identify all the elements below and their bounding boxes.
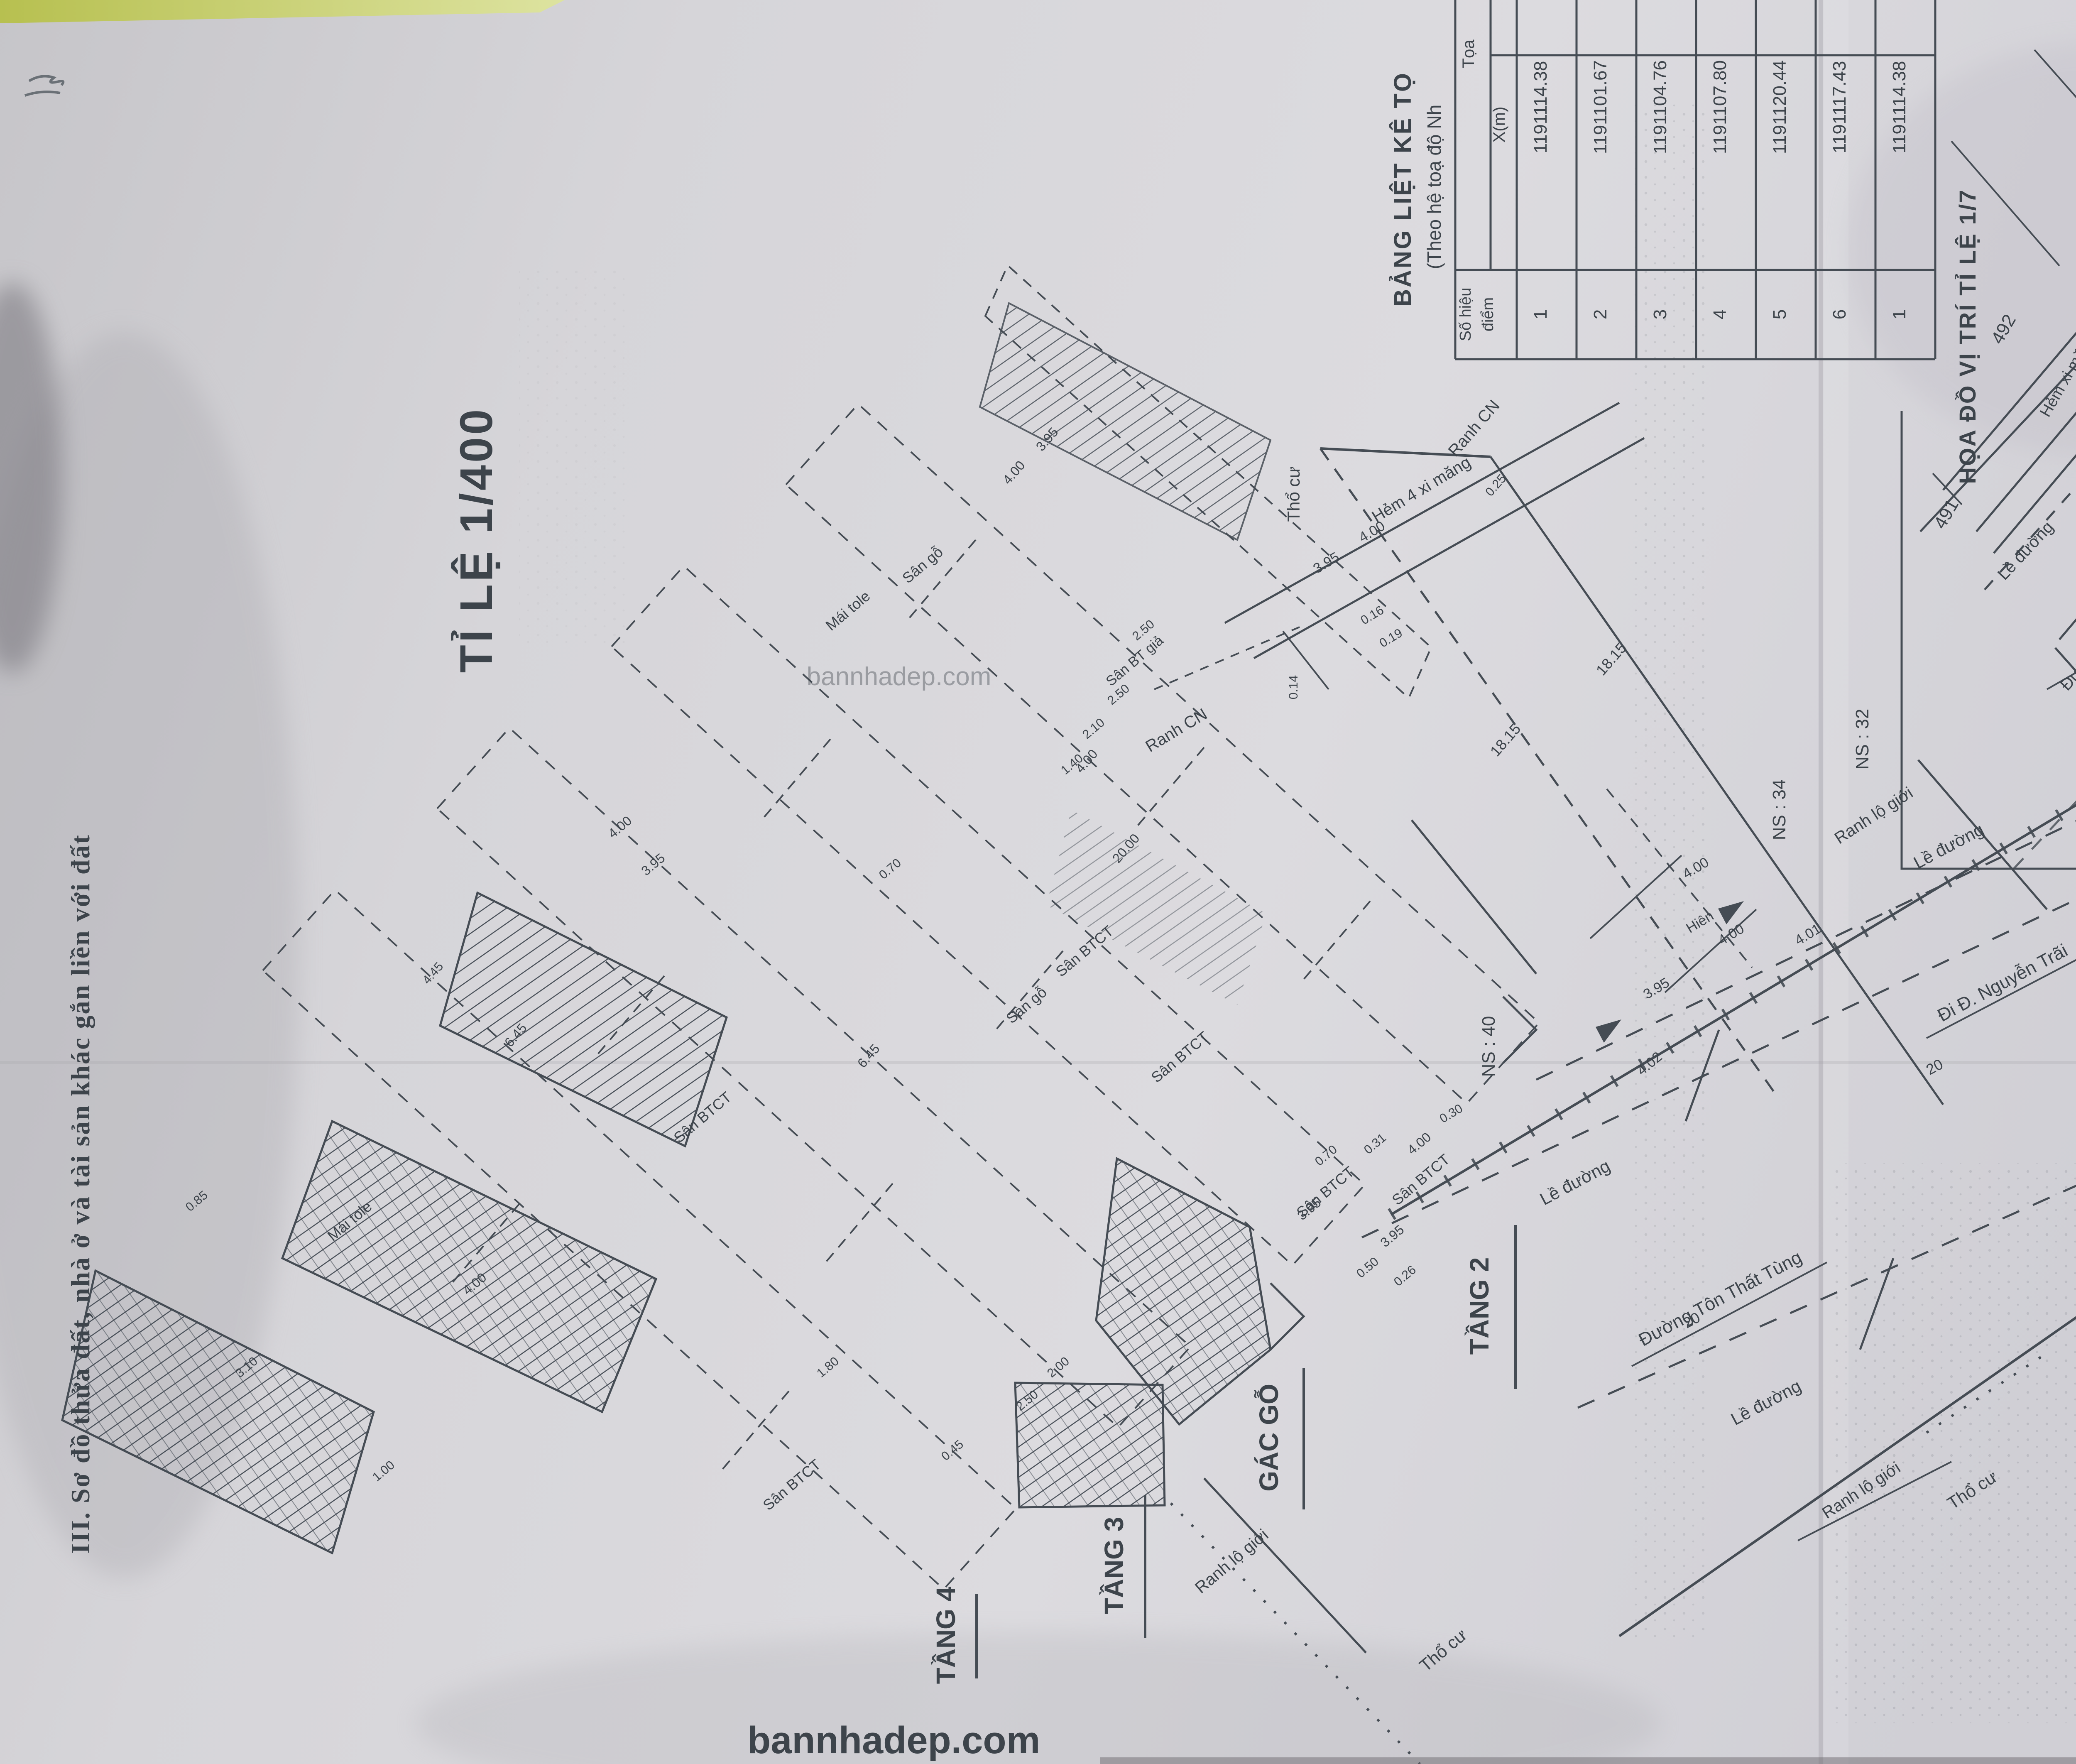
table-row-x-value: 1191120.44 xyxy=(1770,60,1790,154)
drawing-label: NS : 34 xyxy=(1769,779,1790,840)
drawing-label: 0.14 xyxy=(1287,675,1300,699)
coord-table-header-point1: Số hiệu xyxy=(1457,288,1474,341)
table-row-x-value: 1191114.38 xyxy=(1889,61,1910,154)
paper-crease-vertical xyxy=(1819,0,1823,1764)
vicinity-title: HỌA ĐỒ VỊ TRÍ TỈ LỆ 1/7 xyxy=(1954,189,1981,484)
table-row-number: 4 xyxy=(1710,309,1730,319)
caption-tang-4: TẦNG 4 xyxy=(931,1586,961,1684)
paper-crease-horizontal xyxy=(0,1061,2076,1064)
table-row-x-value: 1191107.80 xyxy=(1710,60,1730,154)
table-row-number: 3 xyxy=(1650,309,1670,319)
table-row-x-value: 1191117.43 xyxy=(1829,61,1850,154)
drawing-label: NS : 32 xyxy=(1852,709,1873,770)
coord-table-header-x: X(m) xyxy=(1490,107,1508,143)
table-row-number: 1 xyxy=(1530,309,1551,319)
table-row-number: 6 xyxy=(1829,309,1850,319)
table-row-number: 5 xyxy=(1770,309,1790,319)
caption-tang-2: TẦNG 2 xyxy=(1464,1257,1494,1355)
coord-table-header-point2: điểm xyxy=(1479,297,1497,331)
table-row-x-value: 1191104.76 xyxy=(1650,60,1670,154)
table-row-x-value: 1191114.38 xyxy=(1530,61,1551,154)
scale-title: TỈ LỆ 1/400 xyxy=(451,407,502,673)
table-row-number: 1 xyxy=(1889,309,1910,319)
bottom-watermark: bannhadep.com xyxy=(747,1719,1040,1762)
cadastral-document-photo: 49149249349449549Hẻm xi măngLề đườngĐườn… xyxy=(0,0,2076,1764)
center-watermark: bannhadep.com xyxy=(807,662,991,691)
table-row-number: 2 xyxy=(1590,309,1611,319)
caption-gac-go: GÁC GỖ xyxy=(1253,1384,1284,1492)
table-row-x-value: 1191101.67 xyxy=(1590,60,1611,154)
section-heading: III. Sơ đồ thửa đất, nhà ở và tài sản kh… xyxy=(66,834,95,1554)
drawing-label: NS : 40 xyxy=(1479,1016,1499,1077)
coord-table-subtitle: (Theo hệ toạ độ Nh xyxy=(1423,105,1445,269)
photo-canvas: 49149249349449549Hẻm xi măngLề đườngĐườn… xyxy=(0,0,2076,1764)
caption-tang-3: TẦNG 3 xyxy=(1099,1517,1129,1615)
drawing-label: Thổ cư xyxy=(1284,466,1303,522)
coord-table-title: BẢNG LIỆT KÊ TỌ xyxy=(1389,71,1416,306)
coord-table-header-coord: Tọa xyxy=(1459,39,1478,69)
